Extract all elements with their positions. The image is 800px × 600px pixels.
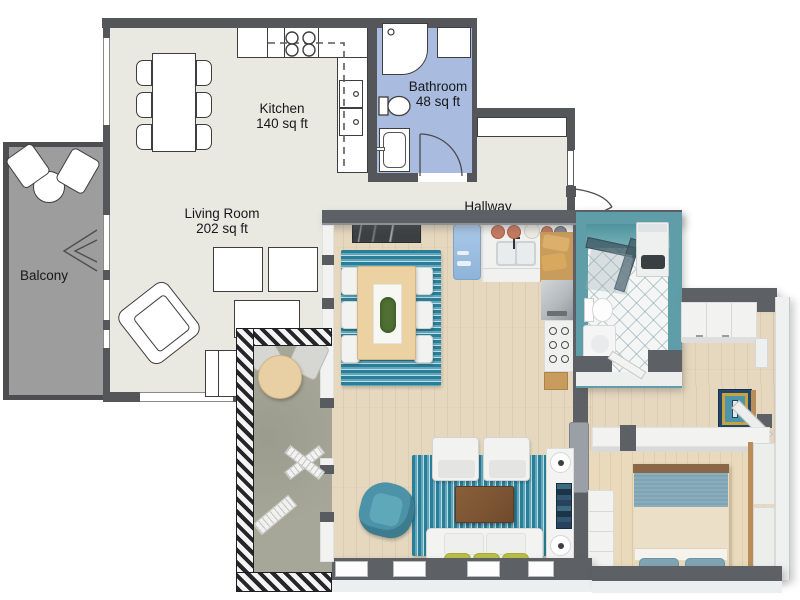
dresser-seam (589, 511, 615, 512)
dining-table-2d (152, 53, 196, 152)
vanity-basin-3d (591, 335, 609, 353)
books (556, 483, 572, 529)
burner (561, 355, 569, 363)
side-table-2d (213, 247, 263, 292)
bathroom-name: Bathroom (378, 79, 498, 94)
room-label-kitchen: Kitchen 140 sq ft (222, 101, 342, 131)
dining-table-3d (357, 266, 416, 360)
entry-door-2d (567, 150, 574, 186)
wall-bath-bottom-2d (368, 173, 418, 182)
speaker (550, 452, 571, 473)
hallway-cabinet-3d (755, 338, 768, 368)
wall-bedroom-top-face-3d (592, 447, 770, 452)
room-label-bathroom: Bathroom 48 sq ft (378, 79, 498, 109)
entry-door-hinge-2d (566, 186, 576, 197)
wall-bottom-face-3d (330, 580, 592, 592)
dresser-seam (589, 551, 615, 552)
sofa-seat-line-2d (218, 351, 219, 396)
window-bottom-3d (528, 561, 554, 577)
kitchen-cabinet-2d (339, 80, 363, 108)
kitchen-cabinet-3d (544, 372, 568, 390)
wall-bottom-bedroom-3d (592, 566, 782, 581)
counter-divider (318, 28, 319, 58)
hood-vent (547, 311, 567, 316)
burner (561, 341, 569, 349)
bathroom-wall-bottom-3d (576, 356, 612, 372)
dining-chair-2d (136, 60, 152, 86)
balcony-door-2d (103, 215, 110, 270)
fridge-handle (457, 261, 471, 266)
cutting-board (542, 234, 570, 252)
counter-divider (267, 28, 268, 58)
burner (549, 341, 557, 349)
bed-duvet (634, 507, 728, 550)
washing-machine-3d (636, 222, 669, 277)
wall-left-3d (322, 225, 334, 335)
sofa-back-cushion (486, 533, 526, 555)
plate (524, 223, 540, 239)
bedroom-closet-3d (753, 443, 775, 505)
media-console-3d (546, 448, 574, 560)
living-room-name: Living Room (162, 206, 282, 221)
wall-bedroom-top-3d (592, 427, 770, 447)
dining-chair-2d (136, 92, 152, 118)
chair-seat-shade (489, 460, 526, 478)
speaker-dot (558, 543, 564, 549)
vanity-handle-2d (376, 147, 385, 151)
fridge-handle (457, 251, 469, 255)
washer-2d (437, 27, 471, 58)
bed-footboard (633, 464, 729, 473)
wall-bedroom-cap-3d (620, 425, 636, 451)
kitchen-cabinet-2d (339, 108, 363, 136)
bedroom-closet-3d (753, 507, 775, 570)
cutting-board (541, 252, 567, 271)
kitchen-area: 140 sq ft (222, 116, 342, 131)
counter-divider (284, 28, 285, 58)
armchair-cushion (368, 492, 404, 528)
fridge-3d (453, 224, 481, 280)
kitchen-counter-top-2d (237, 28, 368, 58)
wall-hallway-right-2d (567, 108, 575, 150)
window-bottom-3d (393, 561, 426, 577)
vanity-basin-2d (383, 132, 406, 168)
dining-chair-2d (196, 60, 212, 86)
speaker-dot (558, 460, 564, 466)
burner (549, 355, 557, 363)
hallway-closet-3d (681, 302, 757, 342)
dining-chair-3d (414, 301, 433, 329)
washer-door (641, 255, 665, 269)
wall-bath-bottom-2d (467, 173, 477, 182)
balcony-wall-cap (320, 398, 334, 408)
kitchen-sink-3d (496, 241, 536, 266)
wall-right-3d (775, 297, 790, 580)
balcony-wall-bottom-2d (3, 395, 110, 400)
plate (491, 225, 505, 239)
room-label-balcony: Balcony (0, 268, 88, 283)
balcony-table-3d (258, 355, 302, 399)
balcony-wall-cap (320, 512, 334, 522)
sofa-back-cushion (444, 533, 484, 555)
window-bottom-3d (467, 561, 500, 577)
living-room-area: 202 sq ft (162, 221, 282, 236)
sofa-2d (205, 350, 240, 397)
bed-blanket (634, 473, 728, 507)
wall-left-gap (322, 255, 334, 265)
toilet-bowl-3d (592, 298, 613, 322)
plate (507, 225, 521, 239)
wall-left-gap (322, 298, 334, 309)
armchair-seat-2d (133, 294, 192, 353)
speaker (550, 535, 571, 556)
wall-bottom-bedroom-face-3d (592, 581, 782, 593)
dining-chair-2d (196, 124, 212, 150)
balcony-wall-top-2d (3, 142, 110, 147)
closet-base (682, 337, 758, 343)
window-left-2d (103, 330, 110, 348)
balcony-wall-3d (320, 520, 334, 562)
hallway-closet-2d (477, 117, 567, 137)
window-bottom-3d (335, 561, 368, 577)
bed-3d (633, 464, 729, 574)
lounge-chair-white-3d (483, 437, 530, 481)
shower-tray-3d (585, 249, 632, 294)
window-left-2d (103, 280, 110, 320)
burner (549, 327, 557, 335)
balcony-railing-left-3d (236, 328, 254, 592)
burner (561, 327, 569, 335)
dining-chair-2d (196, 92, 212, 118)
washer-top (638, 224, 667, 232)
bathroom-3d (576, 212, 682, 388)
window-left-2d (103, 38, 110, 125)
bathroom-wall-face-3d (576, 372, 682, 386)
table-plant-3d (380, 297, 396, 333)
balcony-railing-bottom-3d (236, 572, 332, 592)
bathroom-area: 48 sq ft (378, 94, 498, 109)
cutting-board-area-3d (540, 232, 574, 282)
range-hood-3d (541, 280, 574, 320)
wall-corner-3d (755, 297, 775, 312)
stove-3d (544, 320, 574, 372)
dining-chair-3d (414, 267, 433, 295)
dresser-seam (589, 531, 615, 532)
table-runner-3d (373, 284, 402, 344)
room-label-living-room: Living Room 202 sq ft (162, 206, 282, 236)
dining-chair-2d (136, 124, 152, 150)
coffee-table-3d (455, 486, 514, 523)
chair-seat-shade (438, 460, 475, 478)
lounge-chair-white-3d (432, 437, 479, 481)
side-table-2d (268, 247, 318, 292)
wall-kitchen-bath-2d (368, 18, 377, 182)
floorplan-image: Kitchen 140 sq ft Bathroom 48 sq ft Livi… (0, 0, 800, 600)
bathroom-wall-bottom-3d (648, 350, 682, 372)
dining-chair-3d (414, 335, 433, 363)
wall-art-3d (352, 224, 421, 243)
kitchen-name: Kitchen (222, 101, 342, 116)
